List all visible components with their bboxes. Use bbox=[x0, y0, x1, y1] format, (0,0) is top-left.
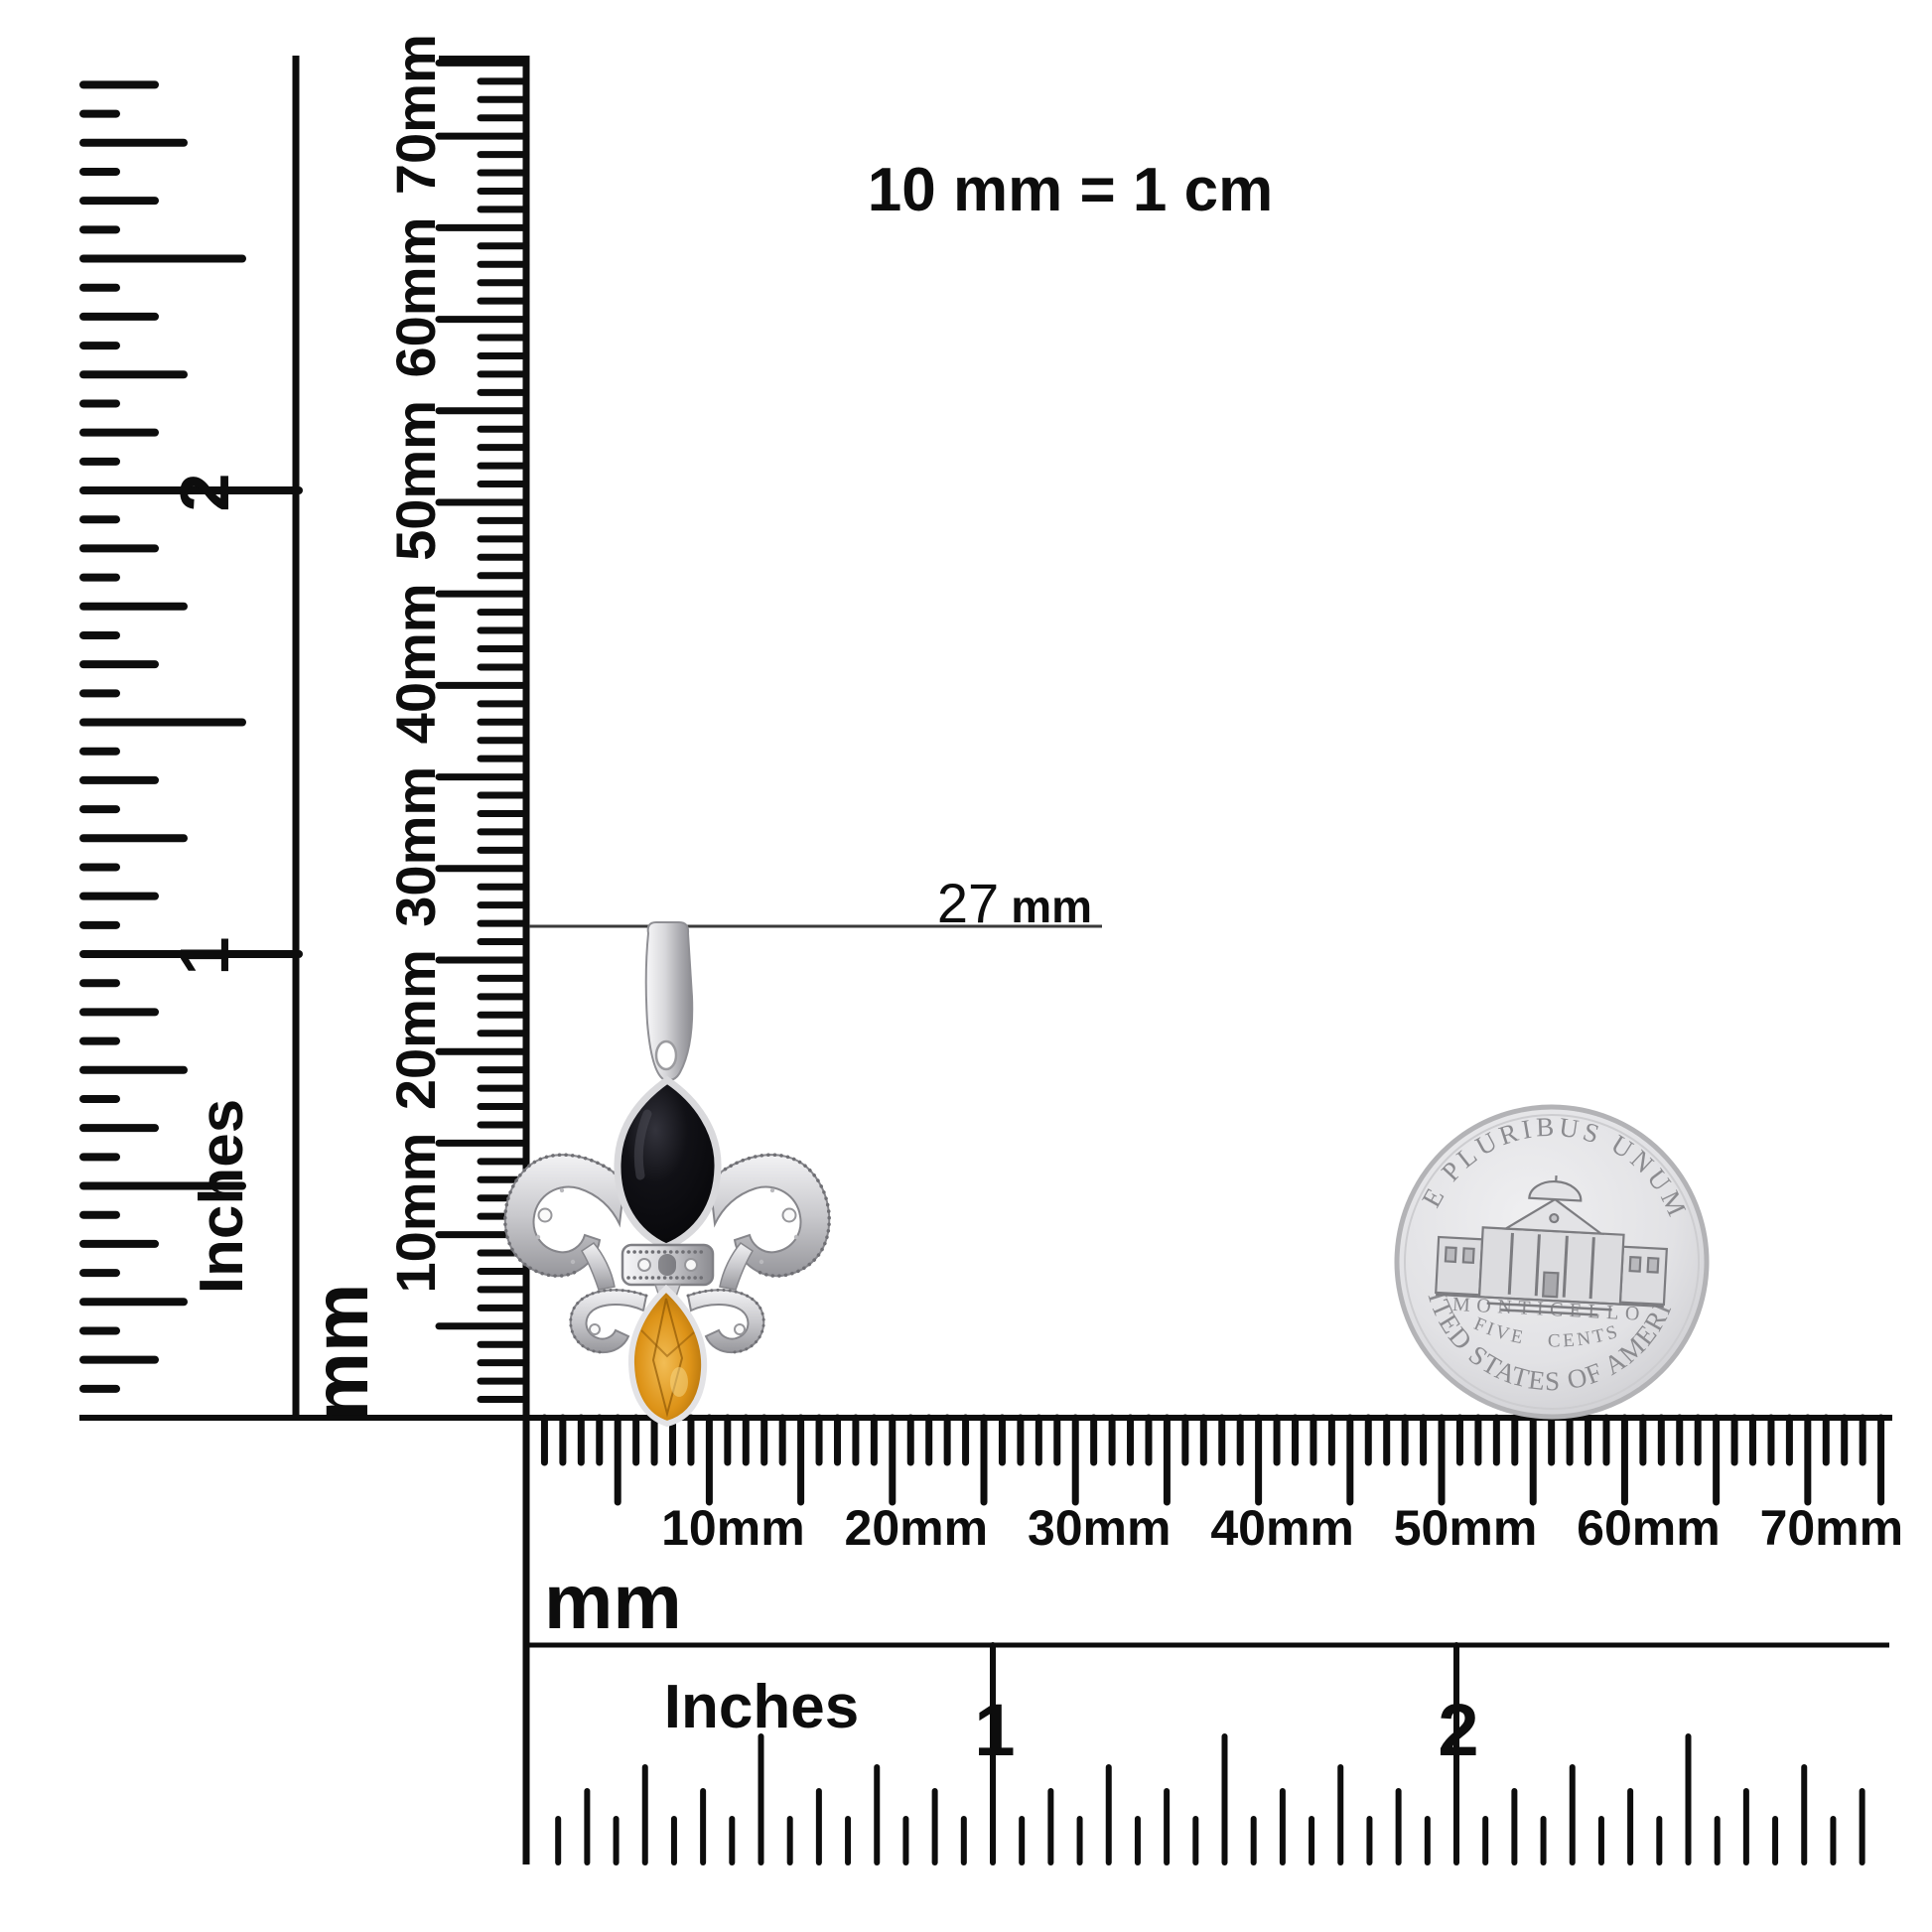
vertical-mm-ruler: 10mm20mm30mm40mm50mm60mm70mmmm bbox=[297, 34, 526, 1421]
diamond-accent bbox=[590, 1324, 600, 1334]
ruler-tick-label: 2 bbox=[1438, 1689, 1478, 1771]
ruler-tick-label: 40mm bbox=[384, 583, 447, 744]
pendant-bail-hole bbox=[656, 1041, 676, 1069]
ruler-tick-label: 1 bbox=[166, 937, 243, 976]
product-size-chart-image: 12Inches 10mm20mm30mm40mm50mm60mm70mmmm … bbox=[0, 0, 1932, 1932]
ruler-tick-label: 20mm bbox=[845, 1500, 989, 1556]
ruler-frame-lines bbox=[79, 56, 1892, 1864]
scale-note: 10 mm = 1 cm bbox=[868, 156, 1273, 224]
ruler-tick-label: 50mm bbox=[384, 400, 447, 561]
diamond-accent bbox=[783, 1209, 796, 1222]
horizontal-mm-ruler: 10mm20mm30mm40mm50mm60mm70mmmm bbox=[544, 1418, 1903, 1645]
ruler-tick-label: 2 bbox=[166, 474, 243, 512]
ruler-tick-label: 10mm bbox=[661, 1500, 805, 1556]
diamond-accent bbox=[735, 1324, 745, 1334]
bottom-inches-ruler: 12Inches bbox=[558, 1645, 1862, 1863]
ruler-tick-label: 60mm bbox=[1577, 1500, 1721, 1556]
ruler-tick-label: 30mm bbox=[384, 766, 447, 927]
fleur-arm-right bbox=[710, 1155, 829, 1290]
size-unit: mm bbox=[1011, 881, 1092, 932]
ruler-tick-label: 10mm bbox=[384, 1133, 447, 1294]
pendant-photo bbox=[505, 922, 829, 1424]
ruler-tick-label: 30mm bbox=[1028, 1500, 1172, 1556]
onyx-marquise-stone bbox=[618, 1080, 718, 1247]
diamond-accent bbox=[685, 1259, 697, 1271]
ruler-tick-label: mm bbox=[544, 1558, 682, 1645]
size-annotation: 27mm bbox=[529, 872, 1102, 934]
left-inches-ruler: 12Inches bbox=[83, 84, 299, 1388]
ruler-tick-label: 40mm bbox=[1210, 1500, 1354, 1556]
stone-glint bbox=[670, 1367, 688, 1397]
ruler-tick-label: 70mm bbox=[384, 34, 447, 195]
ruler-tick-label: Inches bbox=[188, 1099, 256, 1294]
diamond-accent bbox=[539, 1209, 552, 1222]
ruler-tick-label: 20mm bbox=[384, 949, 447, 1110]
ruler-tick-label: Inches bbox=[664, 1673, 859, 1741]
diamond-accent bbox=[638, 1259, 650, 1271]
ruler-tick-label: 1 bbox=[974, 1689, 1015, 1771]
ruler-tick-label: mm bbox=[297, 1284, 384, 1422]
scene: 12Inches 10mm20mm30mm40mm50mm60mm70mmmm … bbox=[0, 0, 1932, 1932]
ruler-tick-label: 60mm bbox=[384, 217, 447, 378]
ruler-tick-label: 50mm bbox=[1394, 1500, 1538, 1556]
ruler-tick-label: 70mm bbox=[1760, 1500, 1904, 1556]
size-value: 27 bbox=[937, 872, 999, 934]
size-annotation-label: 27mm bbox=[937, 872, 1092, 934]
pendant-band bbox=[622, 1245, 713, 1285]
